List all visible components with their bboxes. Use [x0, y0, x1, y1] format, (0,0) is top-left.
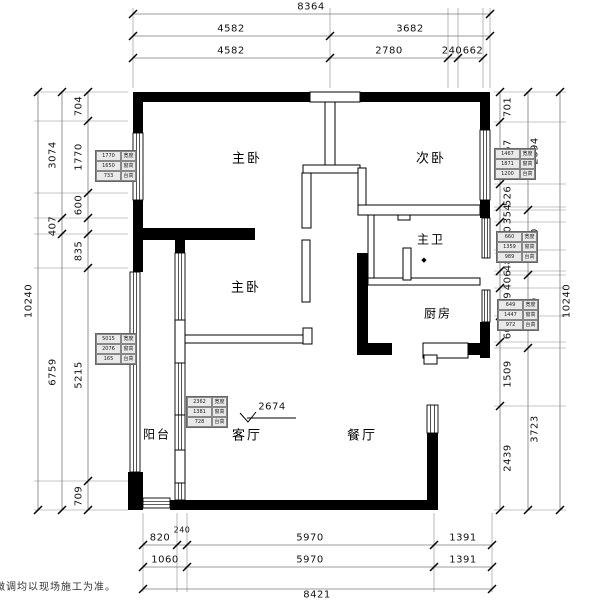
window-tag-cell: 5015 — [96, 334, 121, 344]
window-tag-cell: 728 — [187, 417, 212, 427]
window-tag-cell: 1381 — [187, 407, 212, 417]
window-tag-cell: 1871 — [495, 159, 520, 169]
window-tag-cell: 660 — [497, 232, 522, 242]
footer-note: 微调均以现场施工为准。 — [0, 578, 116, 593]
window-tag-cell: 宽度 — [522, 232, 537, 242]
window-tag-right-middle: 660宽度1359窗高989台高 — [496, 231, 538, 263]
interior-dimension-leader — [240, 412, 296, 422]
window-tag-right-upper: 1467宽度1871窗高1200台高 — [494, 148, 536, 180]
window-tag-cell: 宽度 — [520, 149, 535, 159]
window-tag-cell: 1447 — [498, 310, 523, 320]
window-tag-cell: 台高 — [523, 320, 538, 330]
window-tag-cell: 台高 — [522, 252, 537, 262]
window-tag-cell: 窗高 — [522, 242, 537, 252]
window-tag-cell: 1467 — [495, 149, 520, 159]
window-tag-cell: 宽度 — [523, 300, 538, 310]
window-tag-cell: 2362 — [187, 397, 212, 407]
window-tag-cell: 台高 — [520, 169, 535, 179]
window-tag-cell: 宽度 — [121, 151, 136, 161]
window-tag-right-lower: 649宽度1447窗高972台高 — [497, 299, 539, 331]
floor-plan-page: 8364 4582 3682 4582 2780 240 662 820 240… — [0, 0, 600, 600]
window-tag-cell: 窗高 — [520, 159, 535, 169]
window-tag-cell: 972 — [498, 320, 523, 330]
window-tag-cell: 649 — [498, 300, 523, 310]
window-tag-cell: 窗高 — [523, 310, 538, 320]
window-tag-cell: 台高 — [212, 417, 227, 427]
window-tag-cell: 989 — [497, 252, 522, 262]
window-tag-left-lower: 5015宽度2076窗高165台高 — [95, 333, 137, 365]
window-tag-cell: 1200 — [495, 169, 520, 179]
window-tag-cell: 窗高 — [121, 344, 136, 354]
window-tag-cell: 窗高 — [212, 407, 227, 417]
window-tag-cell: 宽度 — [121, 334, 136, 344]
window-tag-cell: 窗高 — [121, 161, 136, 171]
window-tag-cell: 台高 — [121, 354, 136, 364]
window-tag-cell: 台高 — [121, 171, 136, 181]
window-tag-cell: 2076 — [96, 344, 121, 354]
window-tag-cell: 733 — [96, 171, 121, 181]
window-tag-cell: 165 — [96, 354, 121, 364]
window-tag-living: 2362宽度1381窗高728台高 — [186, 396, 228, 428]
window-tag-cell: 1650 — [96, 161, 121, 171]
window-tag-left-upper: 1770宽度1650窗高733台高 — [95, 150, 137, 182]
window-tag-cell: 1770 — [96, 151, 121, 161]
window-tag-cell: 1359 — [497, 242, 522, 252]
window-tag-cell: 宽度 — [212, 397, 227, 407]
